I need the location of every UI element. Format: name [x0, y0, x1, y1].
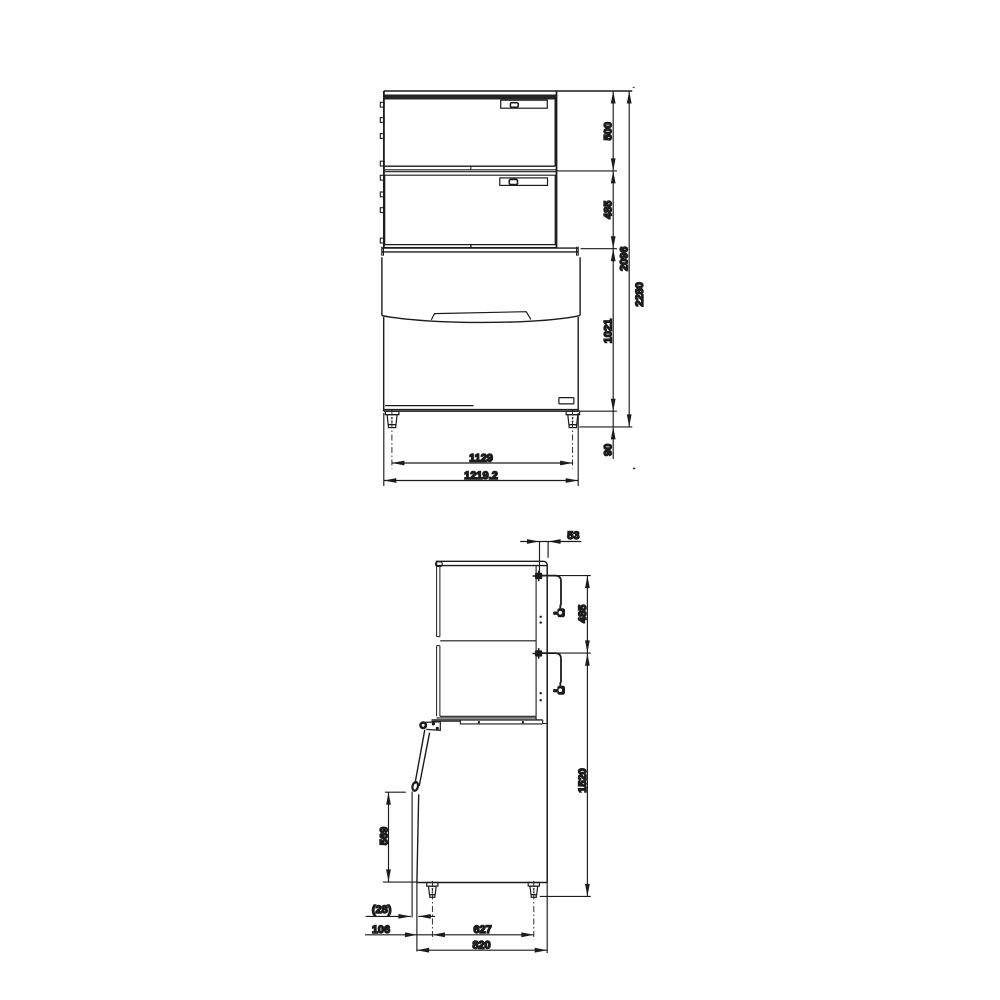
svg-text:627: 627 — [473, 924, 491, 936]
svg-text:106: 106 — [372, 924, 390, 936]
svg-text:90: 90 — [603, 444, 615, 456]
svg-text:2096: 2096 — [619, 247, 631, 271]
svg-text:1219.2: 1219.2 — [464, 470, 498, 482]
svg-text:(28): (28) — [372, 904, 392, 916]
svg-text:485: 485 — [577, 605, 589, 623]
svg-text:820: 820 — [472, 940, 490, 952]
svg-text:485: 485 — [603, 201, 615, 219]
svg-text:569: 569 — [379, 827, 391, 845]
svg-text:53: 53 — [567, 530, 579, 542]
svg-text:1520: 1520 — [577, 768, 589, 792]
svg-text:2280: 2280 — [634, 282, 646, 306]
svg-text:1129: 1129 — [469, 452, 493, 464]
svg-text:500: 500 — [603, 122, 615, 140]
svg-text:1021: 1021 — [603, 319, 615, 343]
